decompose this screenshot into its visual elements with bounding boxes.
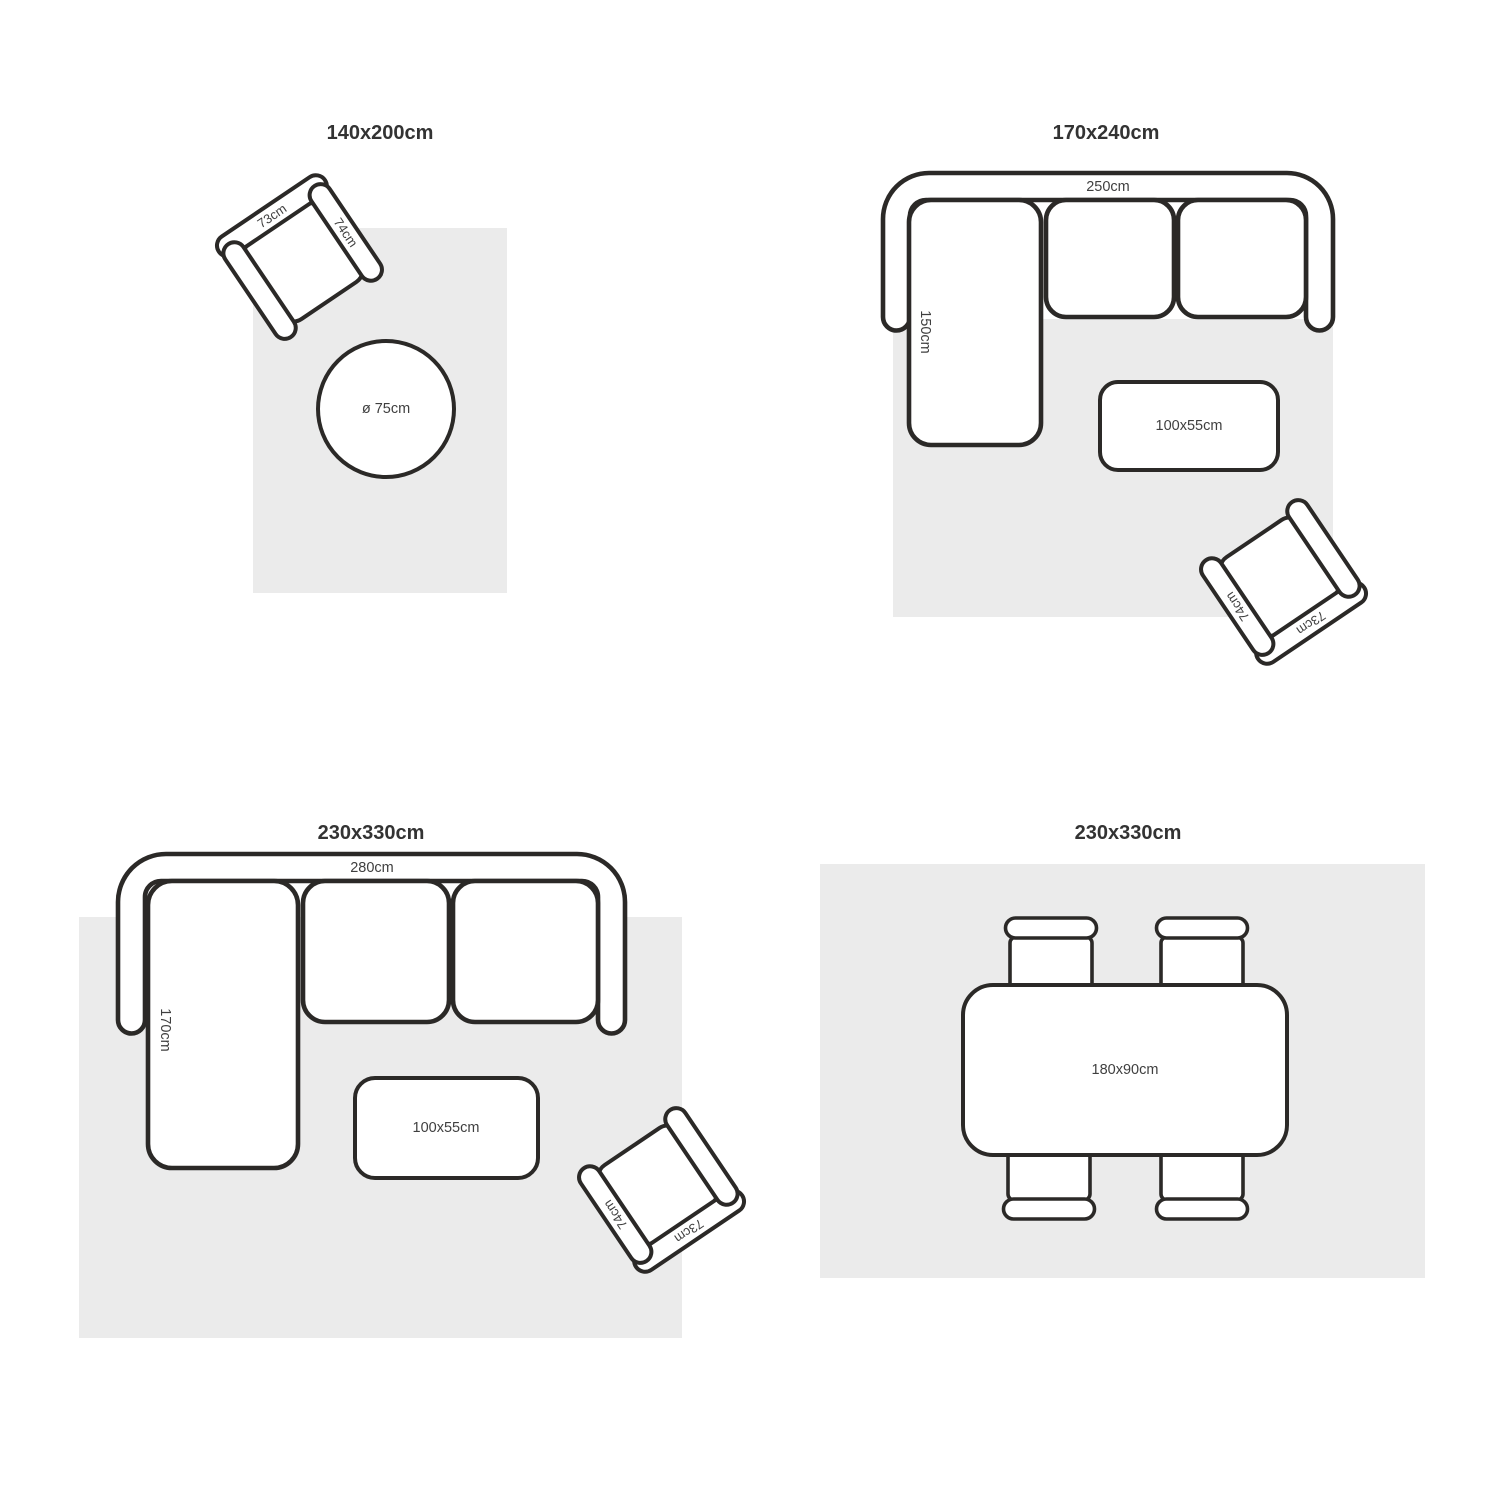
sofa-width-label: 250cm bbox=[1086, 179, 1130, 195]
panel-rug-170x240: 170x240cm 250cm 150cm 100x55cm 73cm 74cm bbox=[883, 122, 1370, 668]
dining-chair bbox=[1157, 1148, 1248, 1219]
sofa-seat-cushion bbox=[303, 881, 449, 1022]
dining-table-size-label: 180x90cm bbox=[1092, 1062, 1159, 1078]
panel-title: 230x330cm bbox=[318, 822, 425, 844]
sofa-depth-label: 170cm bbox=[157, 1008, 173, 1052]
sofa-width-label: 280cm bbox=[350, 860, 394, 876]
panel-title: 140x200cm bbox=[327, 122, 434, 144]
panel-title: 170x240cm bbox=[1053, 122, 1160, 144]
panel-title: 230x330cm bbox=[1075, 822, 1182, 844]
sofa-depth-label: 150cm bbox=[917, 310, 933, 354]
dining-chair bbox=[1006, 918, 1097, 989]
dining-chair-shape bbox=[1004, 1148, 1095, 1219]
coffee-table-size-label: 100x55cm bbox=[413, 1120, 480, 1136]
dining-chair-shape bbox=[1006, 918, 1097, 989]
rug-size-guide: 140x200cm ø 75cm 73cm 74cm 170x240cm 250… bbox=[0, 0, 1500, 1500]
panel-rug-230x330-dining: 230x330cm 180x90cm bbox=[820, 822, 1425, 1278]
rug-size-guide-canvas: 140x200cm ø 75cm 73cm 74cm 170x240cm 250… bbox=[0, 0, 1500, 1500]
sofa-seat-cushion bbox=[453, 881, 598, 1022]
dining-chair-shape bbox=[1157, 1148, 1248, 1219]
sofa-seat-cushion bbox=[1178, 200, 1306, 317]
round-table-size-label: ø 75cm bbox=[362, 401, 410, 417]
dining-chair bbox=[1157, 918, 1248, 989]
panel-rug-230x330-sofa: 230x330cm 280cm 170cm 100x55cm 73cm 74cm bbox=[79, 822, 748, 1338]
panel-rug-140x200: 140x200cm ø 75cm 73cm 74cm bbox=[213, 122, 507, 593]
sofa-seat-cushion bbox=[1046, 200, 1174, 317]
coffee-table-size-label: 100x55cm bbox=[1156, 418, 1223, 434]
dining-chair bbox=[1004, 1148, 1095, 1219]
dining-chair-shape bbox=[1157, 918, 1248, 989]
